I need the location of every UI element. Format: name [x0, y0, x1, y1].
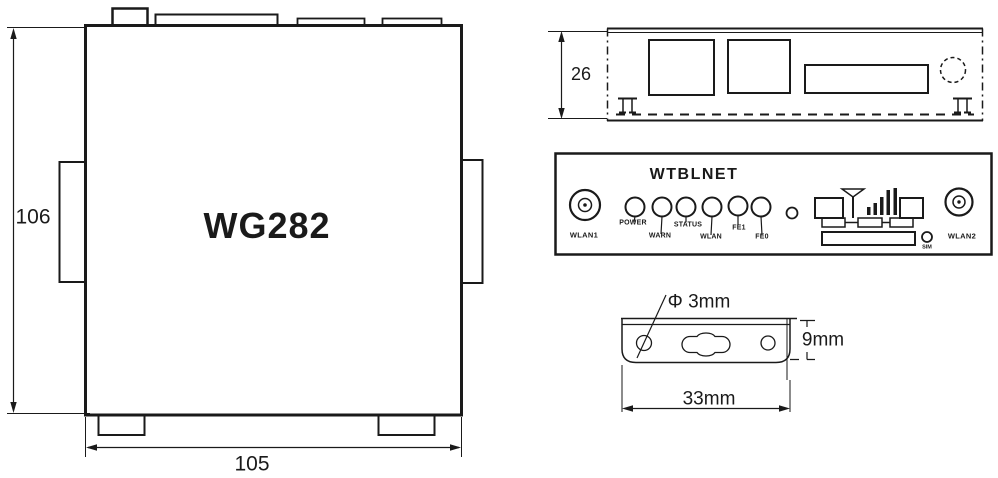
brand-label: WTBLNET	[650, 167, 739, 183]
fe1-led	[729, 197, 748, 216]
led-label-status: STATUS	[674, 222, 702, 229]
mounting-clip-right	[953, 99, 972, 113]
led-label-fe1: FE1	[732, 225, 745, 232]
top-edge-connectors	[113, 9, 442, 27]
led-label-fe0: FE0	[755, 234, 768, 241]
led-label-power: POWER	[619, 220, 646, 227]
hole-diameter-leader-line	[637, 295, 666, 358]
height-dimension-label: 106	[15, 207, 50, 228]
front-panel-drawing	[548, 148, 998, 260]
bracket-center-slot	[682, 333, 730, 356]
rear-port-cutouts	[649, 40, 928, 95]
hole-diameter-label: Φ 3mm	[668, 293, 731, 312]
model-label: WG282	[203, 208, 330, 244]
led-label-warn: WARN	[649, 233, 671, 240]
wlan1-antenna-connector-icon	[570, 190, 600, 220]
width-dimension-lines	[86, 417, 462, 457]
fe0-led	[752, 198, 771, 217]
rear-view-drawing	[540, 8, 998, 132]
led-label-wlan: WLAN	[700, 234, 722, 241]
sim-label: SIM	[922, 245, 932, 251]
bracket-width-label: 33mm	[683, 390, 736, 409]
rear-outline	[607, 29, 983, 122]
sim-slot-icon[interactable]	[822, 232, 915, 245]
rear-height-dimension-label: 26	[571, 65, 591, 83]
wlan-led	[703, 198, 722, 217]
mounting-clip-left	[618, 99, 637, 113]
status-led	[677, 198, 696, 217]
sim-eject-hole-icon[interactable]	[922, 232, 932, 242]
rear-antenna-hole	[941, 58, 966, 83]
wlan2-label: WLAN2	[948, 232, 976, 240]
cellular-module-icon	[815, 188, 923, 227]
panel-outline	[556, 154, 992, 255]
warn-led	[653, 198, 672, 217]
device-dimension-drawing: WG282 106 105	[0, 0, 998, 478]
bracket-hole-right	[761, 336, 775, 350]
width-dimension-label: 105	[234, 454, 269, 475]
power-led	[626, 198, 645, 217]
bracket-height-label: 9mm	[802, 331, 844, 350]
led-indicators	[626, 197, 771, 236]
reset-button-icon[interactable]	[787, 208, 798, 219]
wlan2-antenna-connector-icon	[946, 189, 973, 216]
wlan1-label: WLAN1	[570, 231, 598, 239]
